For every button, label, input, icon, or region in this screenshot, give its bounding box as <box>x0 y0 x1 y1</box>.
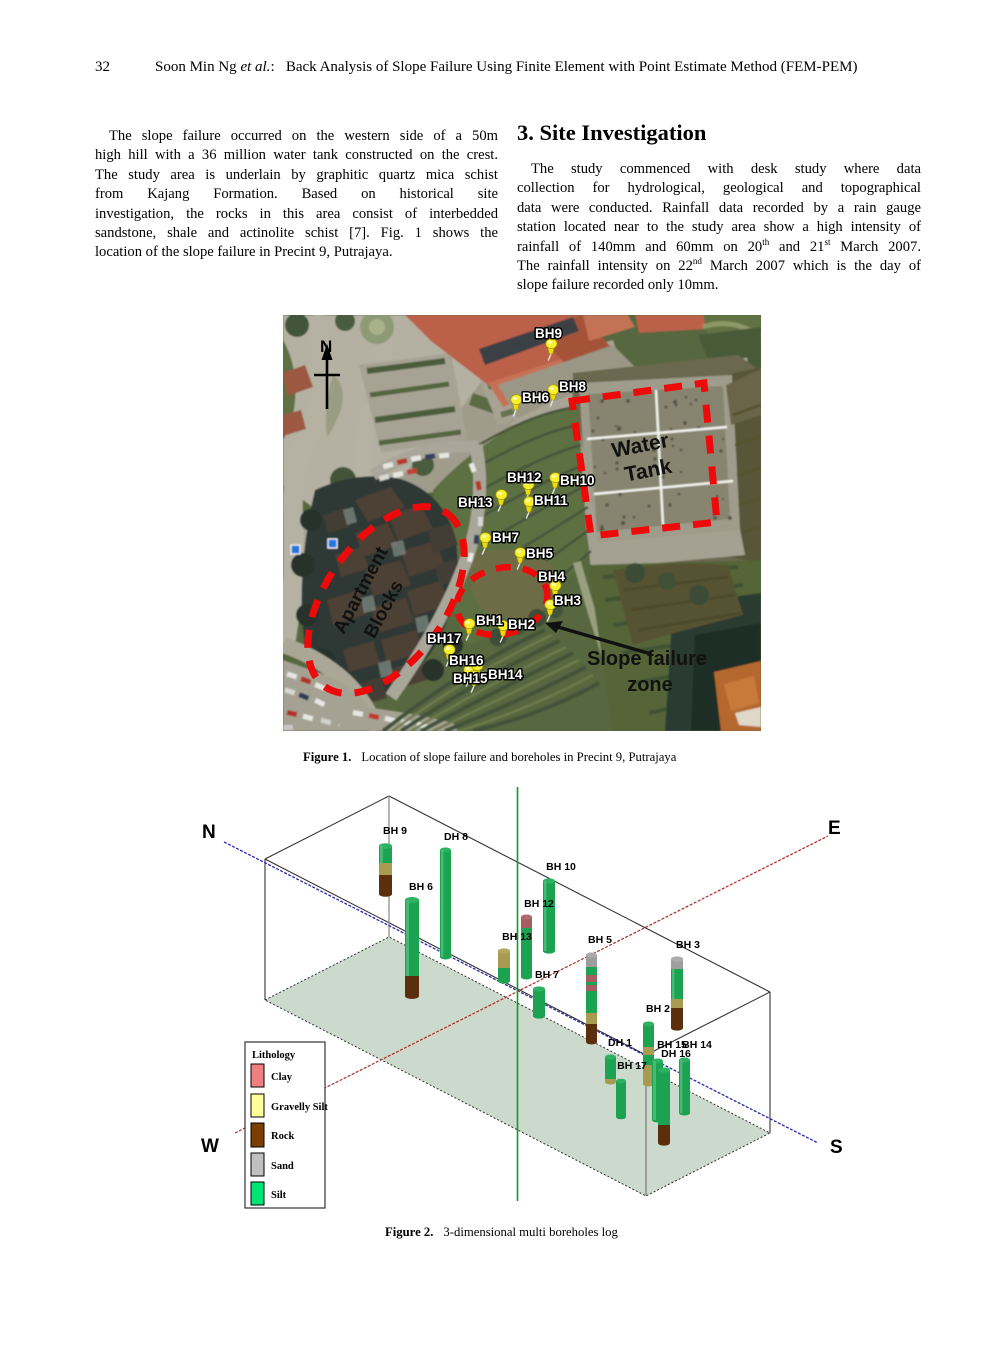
svg-text:N: N <box>202 822 216 843</box>
svg-text:BH 3: BH 3 <box>676 939 700 951</box>
svg-text:DH 16: DH 16 <box>661 1048 691 1060</box>
svg-text:E: E <box>828 818 841 839</box>
svg-text:BH16: BH16 <box>449 653 484 668</box>
svg-text:BH 6: BH 6 <box>409 881 433 893</box>
svg-text:BH4: BH4 <box>538 569 565 584</box>
svg-text:BH 7: BH 7 <box>535 969 559 981</box>
svg-text:W: W <box>201 1136 219 1157</box>
svg-text:DH 8: DH 8 <box>444 831 468 843</box>
svg-text:BH5: BH5 <box>526 546 553 561</box>
svg-text:Silt: Silt <box>271 1190 287 1201</box>
svg-text:BH 9: BH 9 <box>383 825 407 837</box>
svg-text:BH 17: BH 17 <box>617 1060 647 1072</box>
svg-text:BH3: BH3 <box>554 593 581 608</box>
svg-text:BH6: BH6 <box>522 390 549 405</box>
svg-text:S: S <box>830 1137 843 1158</box>
svg-text:BH2: BH2 <box>508 617 535 632</box>
svg-text:BH 5: BH 5 <box>588 934 612 946</box>
svg-text:DH 1: DH 1 <box>608 1037 632 1049</box>
svg-text:Sand: Sand <box>271 1161 294 1172</box>
svg-text:BH8: BH8 <box>559 379 586 394</box>
svg-text:BH 10: BH 10 <box>546 861 576 873</box>
svg-text:Rock: Rock <box>271 1131 294 1142</box>
svg-text:BH17: BH17 <box>427 631 462 646</box>
svg-text:Gravelly Silt: Gravelly Silt <box>271 1102 328 1113</box>
svg-text:Lithology: Lithology <box>252 1050 296 1061</box>
svg-text:BH11: BH11 <box>534 493 568 508</box>
svg-text:Clay: Clay <box>271 1072 293 1083</box>
svg-text:Slope failure: Slope failure <box>587 648 707 670</box>
svg-text:BH 13: BH 13 <box>502 931 532 943</box>
svg-text:BH12: BH12 <box>507 470 542 485</box>
svg-text:N: N <box>320 337 332 356</box>
svg-text:zone: zone <box>627 674 673 696</box>
svg-text:BH 2: BH 2 <box>646 1003 670 1015</box>
svg-text:BH 12: BH 12 <box>524 898 554 910</box>
svg-text:BH15: BH15 <box>453 671 488 686</box>
svg-text:BH9: BH9 <box>535 326 562 341</box>
svg-text:BH7: BH7 <box>492 530 519 545</box>
svg-text:BH10: BH10 <box>560 473 595 488</box>
svg-text:BH1: BH1 <box>476 613 503 628</box>
svg-text:BH13: BH13 <box>458 495 493 510</box>
svg-text:BH14: BH14 <box>488 667 523 682</box>
